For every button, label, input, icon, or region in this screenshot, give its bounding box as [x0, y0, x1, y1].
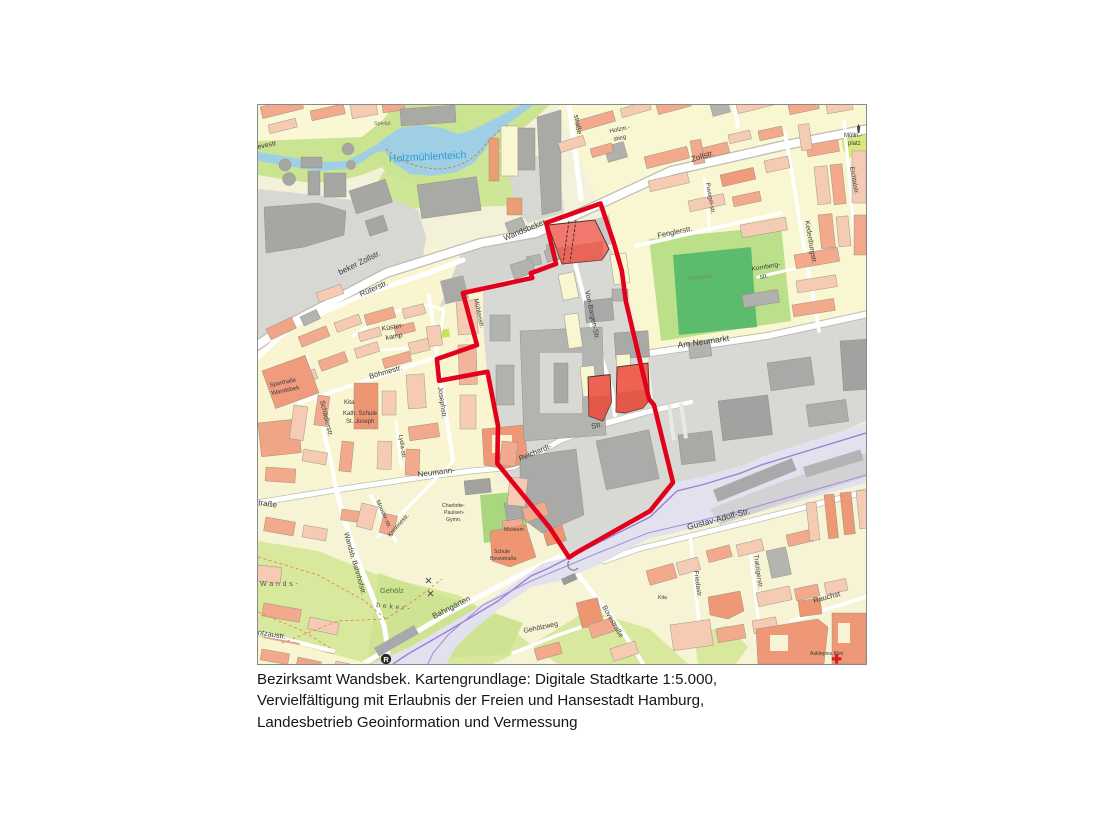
- svg-text:Museum: Museum: [504, 527, 524, 533]
- svg-text:Charlotte-: Charlotte-: [442, 503, 465, 509]
- svg-text:Gymn.: Gymn.: [446, 517, 461, 523]
- svg-text:Schule: Schule: [494, 549, 510, 555]
- svg-text:Kita: Kita: [658, 595, 667, 601]
- svg-text:Kath. Schule: Kath. Schule: [343, 411, 378, 417]
- svg-text:Paulsen-: Paulsen-: [444, 510, 465, 516]
- svg-text:Asklepios Klini: Asklepios Klini: [810, 651, 843, 657]
- svg-text:Bovestraße: Bovestraße: [490, 556, 517, 562]
- svg-text:Mölln.-: Mölln.-: [844, 133, 862, 139]
- svg-text:St. Joseph: St. Joseph: [346, 419, 374, 425]
- svg-text:Kita: Kita: [344, 400, 355, 406]
- svg-text:W a n d s -: W a n d s -: [260, 581, 299, 588]
- svg-text:Gehölz: Gehölz: [380, 586, 404, 595]
- svg-text:R: R: [383, 655, 389, 664]
- svg-text:Spielpl.: Spielpl.: [374, 121, 393, 127]
- svg-text:platz: platz: [848, 141, 861, 147]
